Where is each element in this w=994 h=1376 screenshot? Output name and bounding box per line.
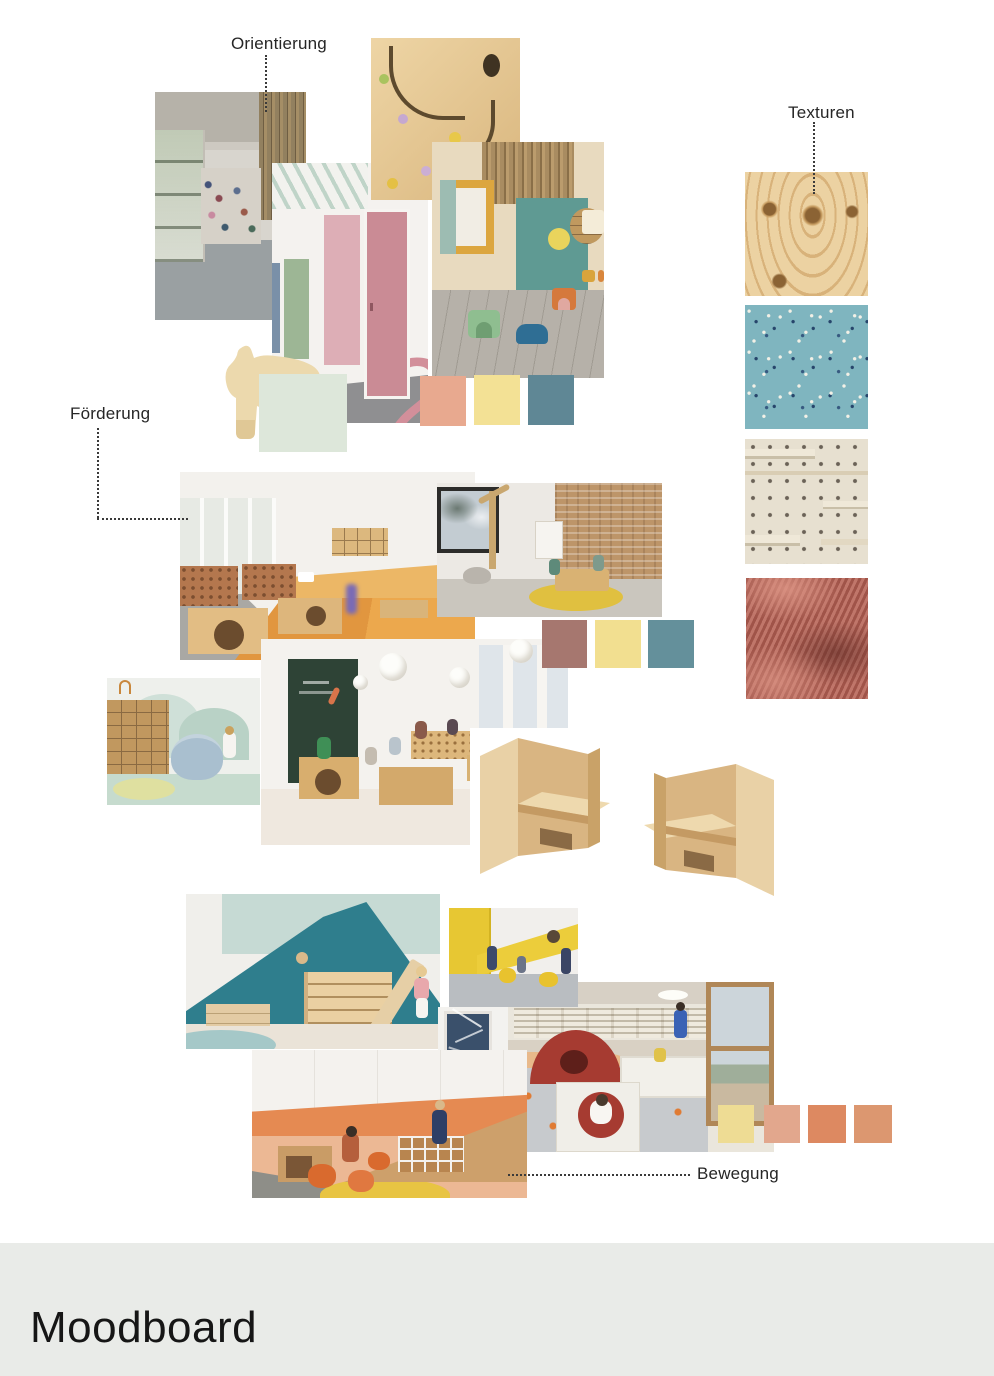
round-rug <box>113 778 175 800</box>
purple-ball <box>421 166 431 176</box>
chalk-writing <box>303 681 329 684</box>
yellow-ball <box>387 178 398 189</box>
wall-shelf <box>332 528 388 556</box>
ceiling-light <box>658 990 688 1000</box>
running-child <box>674 1010 687 1038</box>
drawer-box <box>206 1004 270 1026</box>
texture-corduroy <box>746 578 868 699</box>
photo-orange-floor-classroom <box>180 472 475 660</box>
child-head <box>416 966 427 977</box>
cube-chair-illustration <box>632 752 784 900</box>
plywood-table <box>379 767 453 805</box>
texture-plywood <box>745 172 868 296</box>
stool-arch <box>476 322 492 338</box>
child-head <box>596 1094 608 1106</box>
color-swatch-yellow <box>474 375 520 425</box>
brick-wall <box>555 483 662 581</box>
child-head <box>435 1100 445 1110</box>
color-swatch-salmon <box>764 1105 800 1143</box>
pegboard-shelf <box>745 535 800 546</box>
label-texturen: Texturen <box>788 103 855 123</box>
indoor-tree <box>489 491 496 569</box>
child-head <box>676 1002 685 1011</box>
mint-backdrop <box>259 374 347 452</box>
color-swatch-teal <box>648 620 694 668</box>
cork-panel <box>180 566 238 606</box>
plywood-drawer-cabinet <box>107 700 169 780</box>
yellow-foam-cylinder <box>499 968 516 983</box>
connector-foerderung-vertical <box>97 428 99 518</box>
child <box>593 555 604 571</box>
orange-pouf <box>348 1170 374 1192</box>
child-head <box>296 952 308 964</box>
photo-cube-chair-right <box>632 752 784 900</box>
pegboard-shelf <box>745 471 868 475</box>
green-ball <box>379 74 389 84</box>
wooden-play-table <box>555 569 609 591</box>
child-in-pit <box>654 1048 666 1062</box>
page-title: Moodboard <box>30 1303 257 1353</box>
chalk-writing <box>299 691 333 694</box>
table-hole <box>214 620 244 650</box>
mint-wall <box>440 180 456 254</box>
small-stool <box>582 270 595 282</box>
photo-teal-climbing-corner <box>186 894 440 1049</box>
bench <box>380 600 428 618</box>
child-head <box>346 1126 357 1137</box>
easel <box>535 521 563 559</box>
wood-slat-gallery <box>482 142 574 204</box>
color-swatch-yellow <box>718 1105 754 1143</box>
child <box>415 721 427 739</box>
porthole <box>547 930 560 943</box>
orange-pouf <box>308 1164 336 1188</box>
texture-blue-linoleum <box>745 305 868 429</box>
photo-wooden-horse <box>197 340 347 452</box>
photo-brick-wall-room <box>437 483 662 617</box>
photo-washroom <box>107 678 260 805</box>
connector-bewegung <box>508 1174 690 1176</box>
drawer-boxes <box>398 1136 464 1172</box>
texture-pegboard <box>745 439 868 564</box>
label-orientierung: Orientierung <box>231 34 327 54</box>
moodboard-page: Orientierung Texturen Förderung Bewegung… <box>0 0 994 1376</box>
paper-pendant-lamp <box>353 675 368 690</box>
pegboard-shelf <box>745 449 815 459</box>
connector-texturen <box>813 122 815 194</box>
color-swatch-tan <box>854 1105 892 1143</box>
child <box>487 946 497 970</box>
child <box>223 732 236 758</box>
photo-yellow-movement-room <box>449 908 578 1007</box>
climbing-child <box>342 1134 359 1162</box>
color-swatch-yellow <box>595 620 641 668</box>
child-head <box>225 726 234 735</box>
child <box>365 747 377 765</box>
cave-opening <box>560 1050 588 1074</box>
child <box>389 737 401 755</box>
sink <box>298 572 314 582</box>
label-bewegung: Bewegung <box>697 1164 779 1184</box>
photo-cube-chair-left <box>470 728 620 880</box>
pegboard-shelf <box>821 539 868 545</box>
child <box>317 737 331 759</box>
wall-hole <box>483 54 500 77</box>
cube-chair-illustration <box>470 728 620 880</box>
connector-foerderung-horizontal <box>97 518 188 520</box>
window-front <box>155 130 205 262</box>
orange-pouf <box>368 1152 390 1170</box>
child <box>416 998 428 1018</box>
child <box>549 559 560 575</box>
child <box>414 978 429 1000</box>
door-handle <box>370 303 373 311</box>
cork-panel <box>242 564 296 600</box>
purple-ball <box>398 114 408 124</box>
table-hole <box>315 769 341 795</box>
palm-shadow-ceiling <box>272 163 368 209</box>
stool-arch <box>558 298 570 310</box>
yellow-foam-cylinder <box>539 972 558 987</box>
color-swatch-mauve <box>542 620 587 668</box>
paper-pendant-lamp <box>509 639 533 663</box>
coat-racks <box>201 168 261 244</box>
paper-pendant-lamp <box>449 667 470 688</box>
color-swatch-salmon <box>420 376 466 426</box>
running-child <box>346 584 357 614</box>
child <box>561 948 571 974</box>
round-blue-basin <box>171 734 223 780</box>
walking-child <box>432 1110 447 1144</box>
footer-band: Moodboard <box>0 1243 994 1376</box>
label-foerderung: Förderung <box>70 404 150 424</box>
umbrella-hook <box>119 680 131 694</box>
connector-orientierung <box>265 55 267 112</box>
photo-orange-ramp-landscape <box>252 1050 527 1198</box>
photo-teal-playroom <box>432 142 604 378</box>
color-swatch-orange <box>808 1105 846 1143</box>
window-mullion <box>706 1046 774 1051</box>
wall-light <box>582 210 604 234</box>
yellow-circle <box>548 228 570 250</box>
blue-stool <box>516 324 548 344</box>
child <box>517 956 526 973</box>
small-stool <box>598 270 604 282</box>
gray-pouf <box>463 567 491 584</box>
table-hole <box>306 606 326 626</box>
child <box>447 719 458 735</box>
pegboard-shelf <box>823 501 868 509</box>
color-swatch-teal <box>528 375 574 425</box>
paper-pendant-lamp <box>379 653 407 681</box>
